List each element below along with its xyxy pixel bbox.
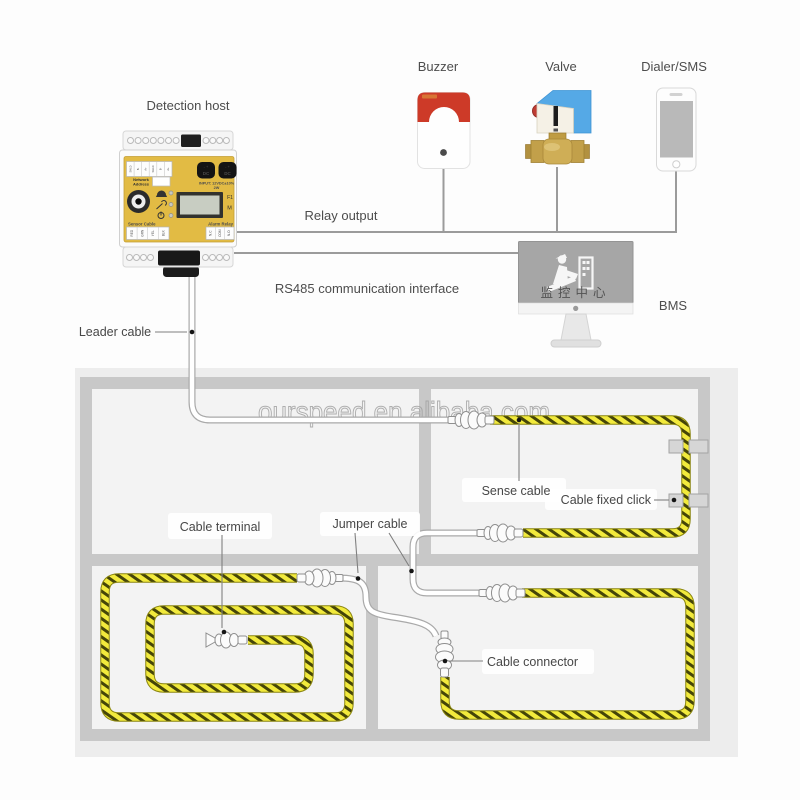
jumper-cable-label: Jumper cable [332, 517, 407, 531]
rs485-label: RS485 communication interface [275, 281, 459, 296]
alarm-relay-panel-label: Alarm Relay [208, 222, 233, 227]
svg-text:DC: DC [224, 171, 231, 176]
dc-input-connector-2: - + DC [219, 162, 237, 179]
svg-text:SHLD: SHLD [129, 165, 133, 172]
valve-label: Valve [545, 59, 577, 74]
svg-text:A+: A+ [144, 167, 148, 171]
relay-wiring [234, 167, 677, 253]
cable-terminal-label: Cable terminal [180, 520, 261, 534]
buzzer-label: Buzzer [418, 59, 459, 74]
svg-text:DC: DC [203, 171, 210, 176]
network-address-label-2: Address [133, 182, 150, 187]
svg-text:B-: B- [136, 168, 140, 171]
svg-text:YEL: YEL [151, 230, 155, 236]
clip-lower-right-part [689, 494, 708, 507]
cable-connector-label: Cable connector [487, 655, 578, 669]
wall-top [80, 377, 710, 389]
svg-text:N.O: N.O [227, 230, 231, 236]
wall-left [80, 377, 92, 741]
wall-divider-horizontal [92, 554, 698, 566]
wall-right [698, 377, 710, 741]
leader-cable-label: Leader cable [79, 325, 151, 339]
f1-button-label: F1 [227, 195, 233, 201]
buzzer-icon [418, 93, 471, 169]
input-rating-label: INPUT: 12VDC±10% [199, 182, 235, 186]
detection-host-label: Detection host [146, 98, 229, 113]
svg-text:- +: - + [225, 164, 230, 169]
svg-text:SHLD: SHLD [151, 165, 155, 172]
power-rating-label: 2W [214, 186, 220, 190]
relay-output-label: Relay output [305, 208, 378, 223]
svg-text:A+: A+ [166, 167, 170, 171]
svg-text:B-: B- [159, 168, 163, 171]
wall-bottom [80, 729, 710, 741]
device-bottom-clip [163, 266, 199, 277]
monitor-screen-text: 监控中心 [540, 285, 610, 300]
svg-text:N.C: N.C [209, 230, 213, 236]
address-window [153, 177, 171, 186]
dc-input-connector-1: - + DC [197, 162, 215, 179]
room-bottom-left [92, 566, 366, 729]
svg-text:BLK: BLK [162, 229, 166, 236]
sense-cable-label: Sense cable [482, 484, 551, 498]
bms-label: BMS [659, 298, 688, 313]
monitor-stand [561, 314, 591, 340]
smartphone-icon [657, 88, 697, 171]
sensor-cable-panel-label: Sensor Cable [128, 222, 156, 227]
sensor-cable-connector [127, 190, 150, 213]
bms-monitor: 监控中心 [519, 242, 634, 348]
clip-upper-left-part [669, 440, 683, 453]
apple-logo-icon [573, 306, 578, 311]
lcd-screen [180, 196, 220, 215]
diagram-canvas: ourspeed.en.alibaba.com [0, 0, 800, 800]
leak-detection-diagram: ourspeed.en.alibaba.com [0, 0, 800, 800]
valve-icon [526, 91, 592, 165]
svg-text:GRN: GRN [140, 229, 144, 237]
clip-upper-right-part [689, 440, 708, 453]
dialer-sms-label: Dialer/SMS [641, 59, 707, 74]
svg-text:- +: - + [204, 164, 209, 169]
cable-fixed-click-label: Cable fixed click [561, 493, 652, 507]
svg-text:COM: COM [218, 229, 222, 237]
monitor-base [551, 340, 601, 347]
device-bottom-connector [158, 251, 200, 266]
device-top-connector [181, 135, 201, 148]
m-button-label: M [227, 206, 232, 212]
svg-text:RED: RED [130, 229, 134, 236]
detection-host-device: SHLD B- A+ SHLD B- A+ Network Address - … [120, 131, 237, 277]
